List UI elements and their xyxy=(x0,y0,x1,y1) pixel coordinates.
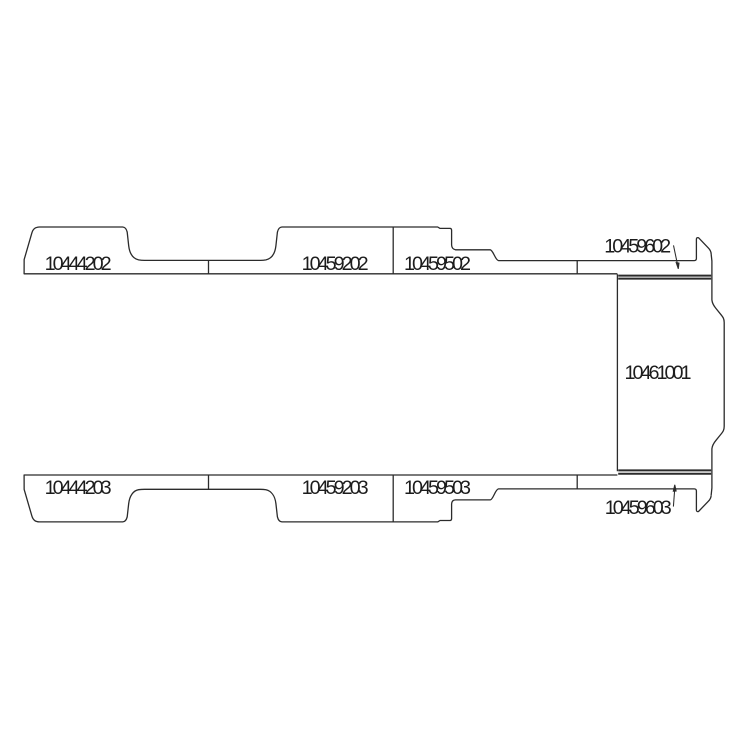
svg-text:10461001: 10461001 xyxy=(625,362,692,384)
svg-text:10459503: 10459503 xyxy=(404,477,471,499)
svg-text:10459602: 10459602 xyxy=(604,236,671,258)
svg-text:10459202: 10459202 xyxy=(302,253,369,275)
svg-text:10444202: 10444202 xyxy=(45,253,112,275)
svg-text:10459603: 10459603 xyxy=(605,497,672,519)
svg-text:10459502: 10459502 xyxy=(404,253,471,275)
svg-text:10459203: 10459203 xyxy=(302,477,369,499)
svg-text:10444203: 10444203 xyxy=(45,477,112,499)
